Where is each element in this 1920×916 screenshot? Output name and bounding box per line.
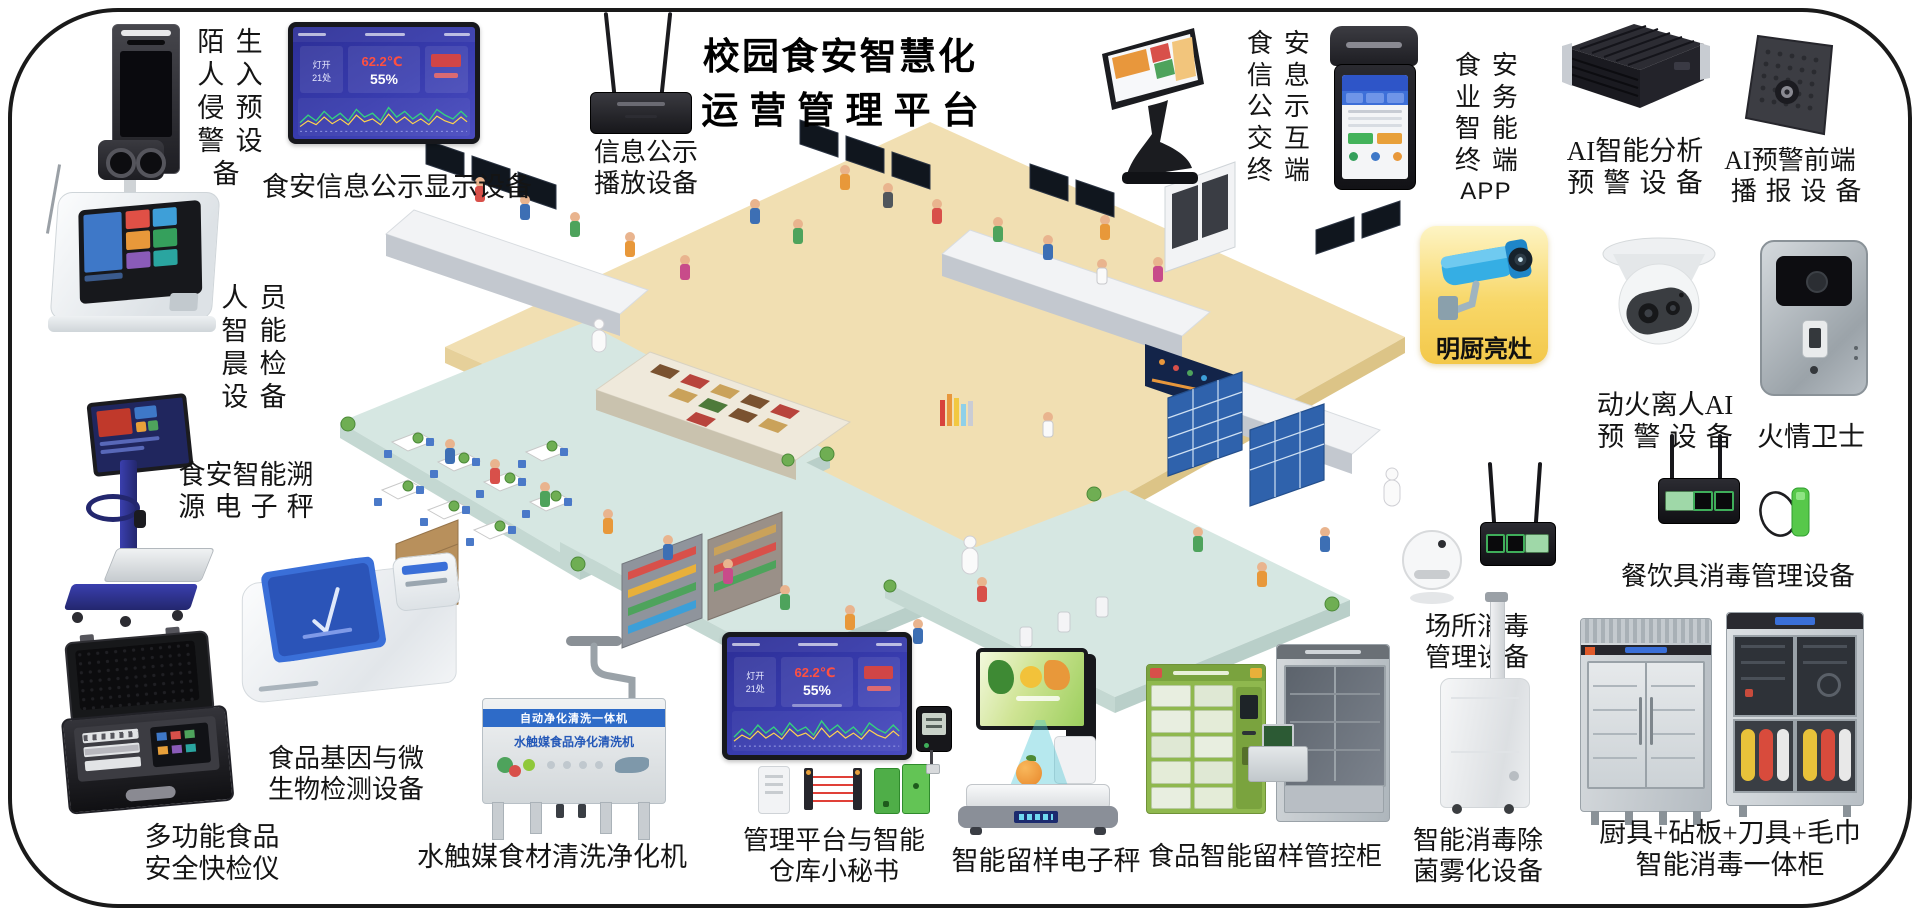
fire-guard-window <box>1776 256 1852 306</box>
antenna-right <box>660 12 673 94</box>
player-body <box>590 92 692 134</box>
pos-body <box>1334 64 1416 190</box>
label-tableware-disinfect: 餐饮具消毒管理设备 <box>1612 562 1864 593</box>
platform-title: 校园食安智慧化 运营管理平台 <box>690 26 990 134</box>
food-washer-machine: 自动净化清洗一体机 水触媒食品净化清洗机 <box>478 636 674 840</box>
label-rapid-tester: 多功能食品安全快检仪 <box>130 822 294 886</box>
mgmt-platform-monitor: 灯开 21处 62.2℃ 55% <box>722 632 912 760</box>
pos-terminal-device <box>1330 26 1418 188</box>
morning-check-robot <box>44 140 220 336</box>
label-combo-cabinet: 厨具+砧板+刀具+毛巾智能消毒一体柜 <box>1586 818 1874 882</box>
label-morning-check: 人员智能 晨检设备 <box>210 282 294 414</box>
detector-screen <box>260 556 387 664</box>
label-info-player: 信息公示播放设备 <box>592 138 700 199</box>
washer-body: 自动净化清洗一体机 水触媒食品净化清洗机 <box>482 698 666 804</box>
label-washer: 水触媒食材清洗净化机 <box>412 842 692 874</box>
washer-faucet <box>548 636 658 706</box>
info-kiosk-device <box>1096 26 1218 190</box>
camera-icon <box>127 40 165 45</box>
bright-kitchen-text: 明厨亮灶 <box>1420 329 1548 364</box>
ir-beam-barrier <box>804 768 862 810</box>
cctv-camera-icon <box>1420 226 1548 322</box>
cabinet-a-doors <box>1587 661 1705 785</box>
poster-canvas: { "title": {"line1": "校园食安智慧化", "line2":… <box>0 0 1920 916</box>
thermal-dome-camera <box>1588 232 1730 350</box>
scale-ad-screen <box>976 648 1088 730</box>
lights-card: 灯开 21处 <box>734 657 776 707</box>
gene-detector-device <box>234 544 486 736</box>
fogger-body <box>1440 678 1530 808</box>
ai-analysis-device <box>1554 16 1714 112</box>
router-body <box>1480 522 1556 566</box>
disinfect-cabinet-a <box>1580 618 1712 812</box>
info-player-device <box>590 12 690 134</box>
sample-scale-device <box>958 648 1130 834</box>
temperature-value: 62.2℃ <box>361 54 402 69</box>
lights-card: 灯开 21处 <box>300 46 343 93</box>
antenna-left <box>604 12 617 94</box>
label-ai-broadcast: AI预警前端 播报设备 <box>1722 146 1858 207</box>
orange-fruit <box>1016 760 1042 786</box>
label-info-kiosk: 食安信息 公示交互 终端 <box>1236 28 1320 187</box>
bright-kitchen-badge: 明厨亮灶 <box>1420 226 1548 364</box>
label-pos-app: 食安业务 智能终端 APP <box>1444 50 1528 206</box>
sample-desk <box>1248 724 1306 780</box>
kiosk-stand <box>1126 100 1192 178</box>
label-sample-cabinet: 食品智能留样管控柜 <box>1142 842 1388 873</box>
alert-card <box>425 46 468 93</box>
case-base <box>61 705 235 815</box>
dashboard-header <box>293 27 475 42</box>
robot-head-camera <box>98 140 164 180</box>
printer-head <box>1330 26 1418 66</box>
humidity-value: 55% <box>370 71 398 87</box>
robot-screen <box>78 200 202 304</box>
scale-tray <box>103 548 215 582</box>
scale-base <box>958 806 1118 828</box>
label-gene-detector: 食品基因与微生物检测设备 <box>264 744 428 805</box>
dashboard-ui: 灯开 21处 62.2℃ 55% <box>727 637 907 755</box>
rapid-test-case <box>54 629 234 829</box>
device-top-strip <box>121 30 171 36</box>
title-line-1: 校园食安智慧化 <box>690 26 990 80</box>
robot-body <box>50 192 221 320</box>
disinfect-cabinet-b <box>1726 612 1864 806</box>
venue-router <box>1480 462 1554 604</box>
fogger-machine <box>1438 592 1534 818</box>
label-trace-scale: 食安智能溯 源电子秤 <box>162 460 330 524</box>
washer-banner-2: 水触媒食品净化清洗机 <box>514 735 634 749</box>
lcd-sensor <box>916 706 952 772</box>
label-fogger: 智能消毒除菌雾化设备 <box>1404 826 1552 887</box>
label-display-board: 食安信息公示显示设备 <box>262 172 486 204</box>
fire-guard-slot <box>1802 320 1828 358</box>
label-fire-guard: 火情卫士 <box>1752 422 1870 454</box>
warehouse-sensor-white <box>758 766 790 814</box>
temp-humidity-card: 62.2℃ 55% <box>348 46 420 93</box>
tableware-router <box>1658 434 1738 550</box>
disinfect-tag <box>1756 482 1822 550</box>
face-screen <box>120 51 172 137</box>
food-safety-display-screen: 灯开 21处 62.2℃ 55% <box>288 22 480 144</box>
label-sample-scale: 智能留样电子秤 <box>948 846 1144 878</box>
fire-guard-device <box>1760 240 1868 396</box>
dashboard-ui: 灯开 21处 62.2℃ 55% <box>293 27 475 139</box>
detector-printer <box>392 552 461 612</box>
scale-base-blue <box>64 584 198 610</box>
trend-chart <box>732 711 901 751</box>
locker-banner <box>1147 665 1265 681</box>
alert-card <box>858 657 900 707</box>
router-body <box>1658 478 1740 524</box>
ai-broadcast-speaker <box>1738 28 1842 144</box>
label-ai-analysis: AI智能分析 预警设备 <box>1552 136 1718 200</box>
temp-humidity-card: 62.2℃ 55% <box>781 657 852 707</box>
pos-screen <box>1342 75 1408 179</box>
washer-banner-1: 自动净化清洗一体机 <box>520 710 628 726</box>
trend-chart <box>298 98 469 136</box>
title-line-2: 运营管理平台 <box>690 80 990 134</box>
label-mgmt-platform: 管理平台与智能仓库小秘书 <box>736 826 932 887</box>
